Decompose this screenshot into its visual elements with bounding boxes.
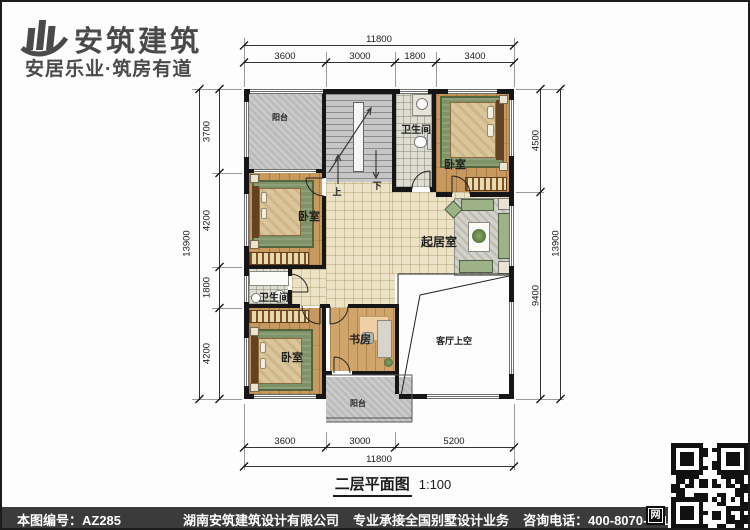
wardrobe-tr bbox=[465, 177, 507, 191]
nightstand bbox=[250, 383, 259, 392]
headboard-ml bbox=[252, 186, 259, 238]
room-label-study: 书房 bbox=[345, 331, 375, 347]
wall bbox=[326, 371, 332, 375]
wall bbox=[244, 169, 254, 173]
pillow bbox=[261, 192, 267, 203]
nightstand bbox=[250, 240, 259, 249]
stair-up-label: 上 bbox=[330, 185, 344, 198]
plant bbox=[472, 229, 486, 243]
wall bbox=[244, 265, 326, 269]
window bbox=[427, 394, 499, 399]
wall bbox=[395, 187, 412, 192]
window bbox=[244, 276, 249, 302]
pillow bbox=[260, 358, 266, 369]
dim-bottom-seg-3: 5200 bbox=[434, 436, 474, 447]
dim-top-seg-4: 3400 bbox=[455, 51, 495, 62]
pillow bbox=[260, 342, 266, 353]
headboard-tr bbox=[496, 100, 504, 160]
sofa-top bbox=[461, 199, 494, 211]
drawing-caption: 二层平面图1:100 bbox=[302, 473, 482, 494]
pillow bbox=[487, 106, 494, 119]
pillow bbox=[487, 124, 494, 137]
wall bbox=[470, 192, 514, 197]
wall bbox=[326, 304, 330, 308]
wall bbox=[392, 89, 396, 192]
sink bbox=[416, 98, 428, 110]
wall bbox=[322, 308, 326, 394]
window bbox=[509, 206, 514, 266]
window bbox=[448, 89, 497, 94]
dim-left-total: 13900 bbox=[182, 227, 193, 261]
dim-left-seg-3: 1800 bbox=[202, 271, 213, 305]
wall bbox=[348, 304, 399, 308]
room-balcony-top-floor bbox=[249, 94, 322, 169]
headboard-bl bbox=[251, 336, 258, 386]
nightstand bbox=[499, 162, 508, 171]
qr-module bbox=[744, 524, 749, 529]
room-balcony-bottom-floor bbox=[326, 377, 412, 422]
dim-left-seg-2: 4200 bbox=[202, 204, 213, 238]
room-label-bath-top: 卫生间 bbox=[396, 121, 436, 136]
bathtub bbox=[249, 271, 289, 286]
wardrobe-ml bbox=[249, 252, 309, 265]
footer-service: 专业承接全国别墅设计业务 bbox=[353, 510, 509, 529]
window bbox=[250, 89, 323, 94]
hall-floor-2 bbox=[326, 274, 395, 308]
wall bbox=[395, 308, 399, 394]
dim-bottom-seg-2: 3000 bbox=[340, 436, 380, 447]
window bbox=[244, 194, 249, 246]
dim-right-seg-1: 4500 bbox=[531, 124, 542, 158]
window bbox=[400, 89, 428, 94]
brand-tagline: 安居乐业·筑房有道 bbox=[25, 54, 192, 81]
sofa-bottom bbox=[459, 260, 493, 273]
toilet bbox=[414, 136, 427, 148]
wall bbox=[244, 304, 300, 308]
stair-down-label: 下 bbox=[370, 179, 384, 192]
room-label-balcony-bottom: 阳台 bbox=[348, 398, 368, 409]
corridor-floor bbox=[292, 269, 326, 306]
wang-logo-icon: 网 bbox=[646, 506, 665, 525]
dim-left-seg-1: 3700 bbox=[202, 115, 213, 149]
drawing-sheet: 安筑建筑 安居乐业·筑房有道 安筑建筑 hnazjz.com 安筑建筑 bbox=[0, 0, 750, 530]
wall bbox=[436, 192, 452, 197]
brand-logo-icon bbox=[18, 12, 70, 58]
window bbox=[254, 394, 316, 399]
nightstand bbox=[250, 174, 259, 183]
window bbox=[244, 102, 249, 157]
room-label-bedroom-tr: 卧室 bbox=[440, 156, 470, 172]
nightstand bbox=[250, 327, 259, 336]
window bbox=[244, 338, 249, 386]
dim-right-total: 13900 bbox=[551, 227, 562, 261]
window bbox=[254, 169, 316, 173]
wall bbox=[432, 89, 436, 192]
wall bbox=[322, 89, 326, 178]
plant bbox=[384, 358, 393, 367]
dim-top-seg-3: 1800 bbox=[395, 51, 435, 62]
wall bbox=[316, 169, 326, 173]
room-label-bedroom-ml: 卧室 bbox=[294, 208, 324, 224]
caption-scale: 1:100 bbox=[419, 477, 452, 492]
dim-bottom-seg-1: 3600 bbox=[265, 436, 305, 447]
window bbox=[509, 100, 514, 156]
drawing-number: 本图编号：AZ285 bbox=[17, 510, 121, 529]
dim-left-seg-4: 4200 bbox=[202, 337, 213, 371]
wall bbox=[288, 269, 292, 276]
wang-logo-char: 网 bbox=[648, 508, 663, 523]
dim-top-seg-1: 3600 bbox=[265, 51, 305, 62]
pillow bbox=[261, 208, 267, 219]
room-label-living: 起居室 bbox=[416, 233, 462, 250]
room-label-void: 客厅上空 bbox=[432, 334, 476, 347]
dim-top-total: 11800 bbox=[359, 34, 399, 45]
room-label-bedroom-bl: 卧室 bbox=[277, 349, 307, 365]
wall bbox=[322, 196, 326, 269]
wardrobe-bl bbox=[249, 310, 309, 323]
desk bbox=[377, 320, 392, 358]
dim-top-seg-2: 3000 bbox=[340, 51, 380, 62]
stair-rail bbox=[353, 102, 364, 172]
caption-title: 二层平面图 bbox=[333, 476, 412, 497]
qr-code bbox=[668, 440, 750, 530]
footer-bar: 本图编号：AZ285 湖南安筑建筑设计有限公司 专业承接全国别墅设计业务 咨询电… bbox=[2, 507, 750, 530]
dim-right-seg-2: 9400 bbox=[531, 279, 542, 313]
nightstand bbox=[499, 95, 508, 104]
wall bbox=[352, 371, 399, 375]
room-label-balcony-top: 阳台 bbox=[264, 112, 296, 123]
footer-company: 湖南安筑建筑设计有限公司 bbox=[183, 510, 339, 529]
room-label-bath-ml: 卫生间 bbox=[254, 289, 294, 304]
dim-bottom-total: 11800 bbox=[359, 454, 399, 465]
window bbox=[509, 302, 514, 374]
